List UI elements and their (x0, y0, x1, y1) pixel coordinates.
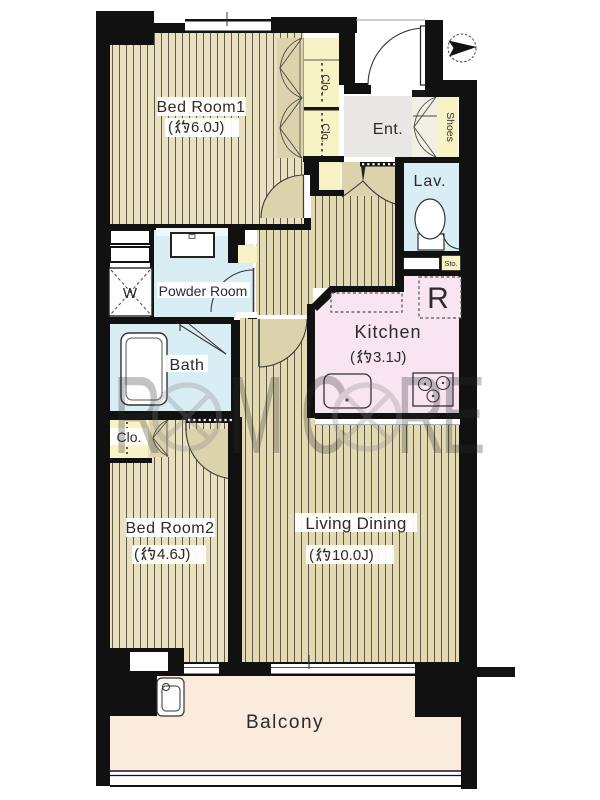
svg-text:M: M (228, 354, 285, 477)
svg-text:Powder Room: Powder Room (159, 283, 248, 299)
svg-text:Lav.: Lav. (413, 173, 446, 190)
svg-text:(: ( (134, 546, 139, 563)
svg-text:10.0J): 10.0J) (332, 547, 374, 564)
svg-text:Living Dining: Living Dining (305, 514, 406, 533)
svg-text:Bed Room2: Bed Room2 (126, 520, 215, 537)
svg-text:Sto.: Sto. (444, 259, 457, 268)
svg-text:W: W (123, 285, 138, 302)
svg-text:E: E (440, 354, 485, 477)
svg-text:R: R (396, 354, 445, 477)
svg-text:(: ( (350, 349, 355, 366)
svg-text:6.0J): 6.0J) (191, 119, 224, 136)
svg-text:Ent.: Ent. (373, 121, 403, 138)
svg-text:C: C (300, 354, 349, 477)
svg-text:(: ( (309, 547, 314, 564)
svg-text:Shoes: Shoes (444, 112, 456, 142)
svg-text:Clo.: Clo. (319, 74, 331, 94)
svg-text:4.6J): 4.6J) (157, 546, 190, 563)
svg-text:Kitchen: Kitchen (354, 322, 421, 342)
svg-text:Bed Room1: Bed Room1 (157, 99, 246, 116)
svg-text:R: R (427, 282, 449, 315)
svg-text:(: ( (168, 119, 173, 136)
svg-text:Clo.: Clo. (319, 123, 331, 143)
svg-text:Balcony: Balcony (246, 712, 324, 733)
svg-text:Bath: Bath (170, 357, 205, 374)
